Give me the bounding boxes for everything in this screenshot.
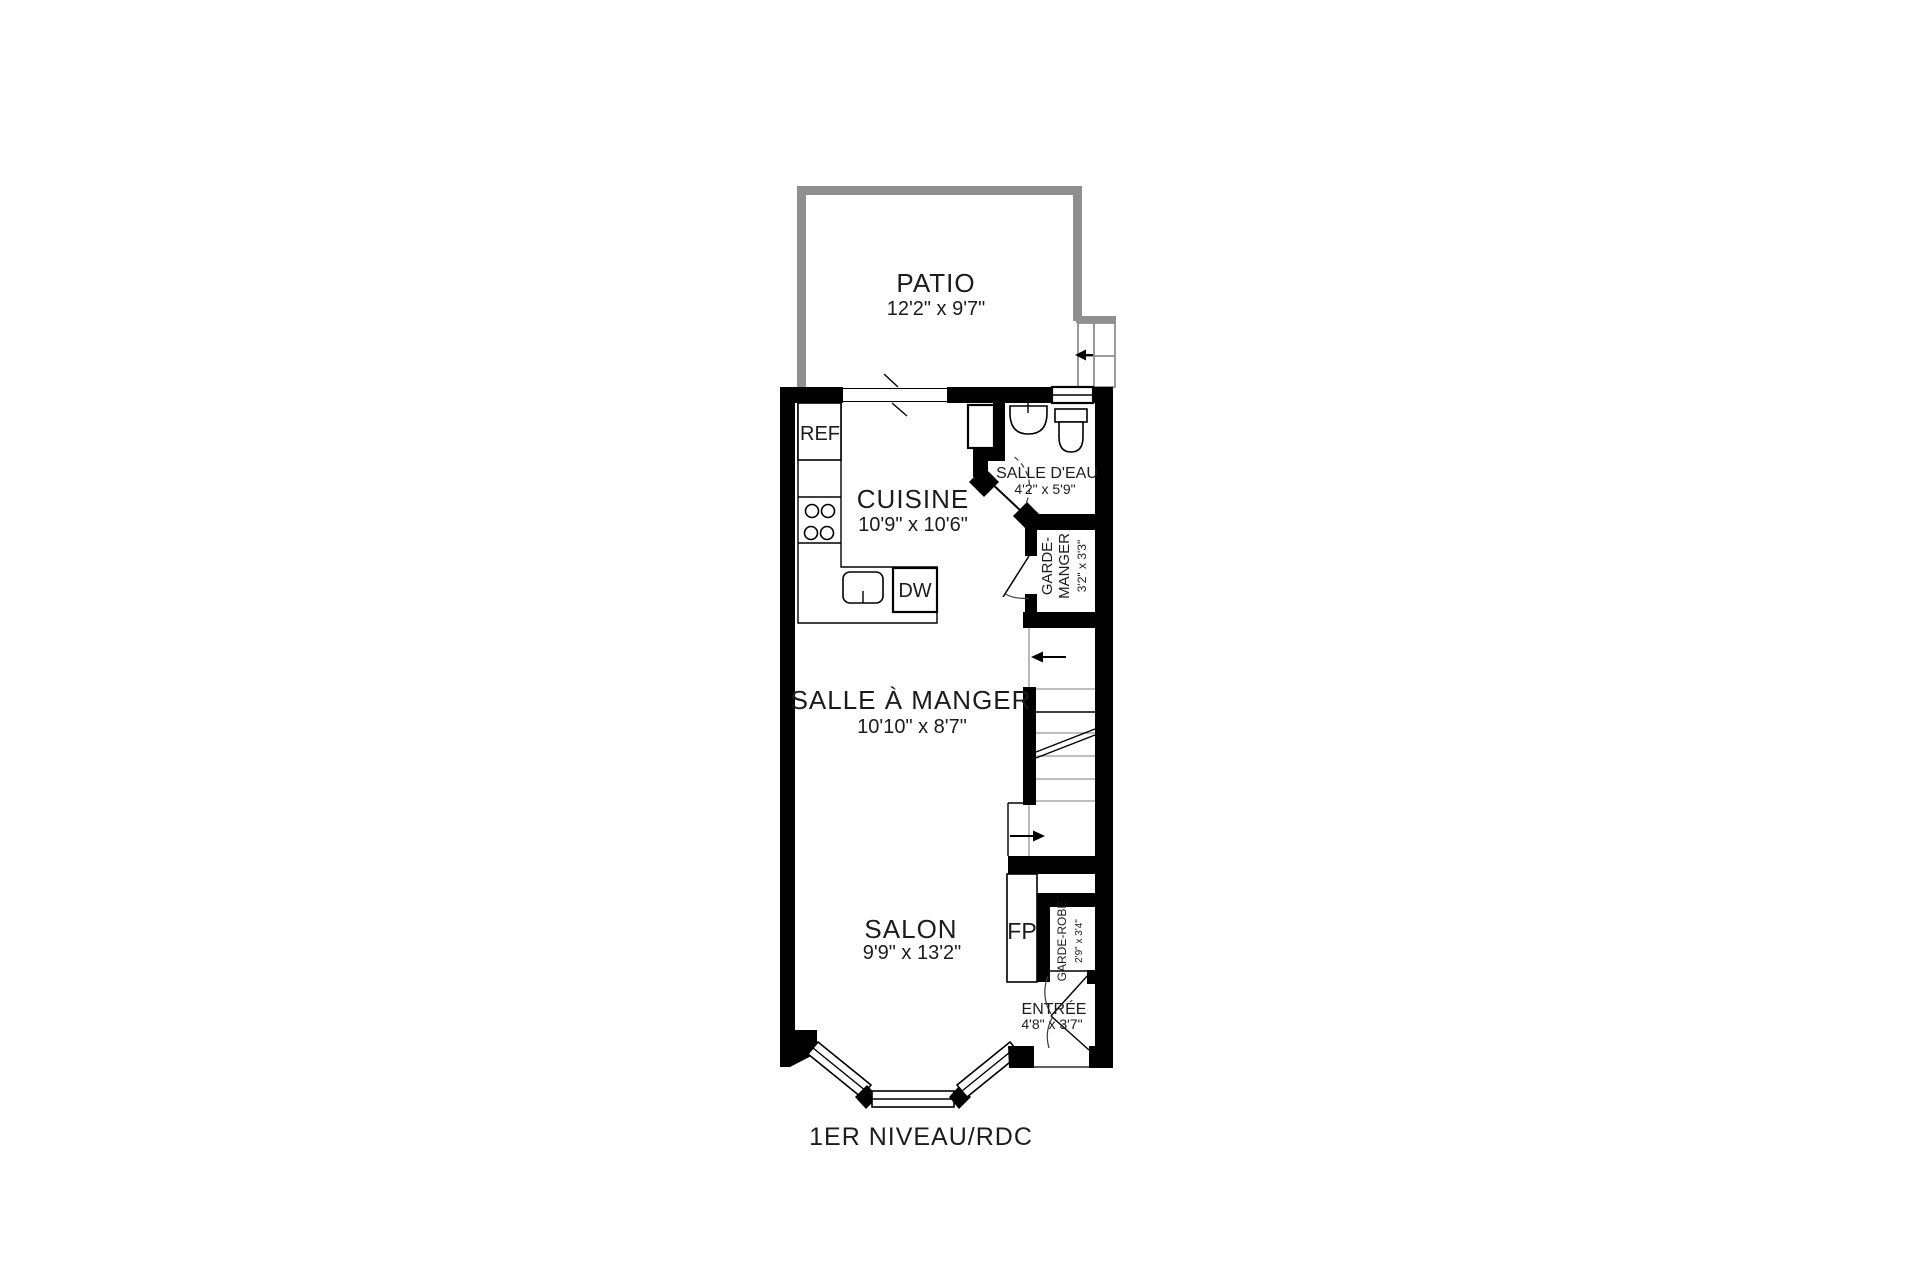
stairs-up-arrow	[1031, 652, 1066, 663]
fireplace-label: FP	[1007, 918, 1036, 944]
dishwasher-label: DW	[898, 580, 931, 602]
kitchen-sink	[843, 572, 883, 603]
burner	[805, 527, 818, 540]
stair-landing	[1008, 803, 1045, 856]
room-label-cuisine: CUISINE	[857, 484, 969, 514]
room-dims-salon: 9'9" x 13'2"	[863, 942, 962, 964]
room-dims-salle-a-manger: 10'10" x 8'7"	[857, 716, 967, 738]
floor-plan-page: PATIO 12'2" x 9'7" CUISINE 10'9" x 10'6"…	[0, 0, 1920, 1280]
burner	[821, 527, 834, 540]
stair-bottom-wall	[1008, 856, 1113, 874]
burner	[822, 505, 835, 518]
bay-corner-left	[780, 1030, 817, 1067]
room-dims-garde-manger: 3'2" x 3'3"	[1075, 540, 1089, 592]
room-dims-salle-deau: 4'2" x 5'9"	[1014, 481, 1075, 497]
room-dims-patio: 12'2" x 9'7"	[887, 298, 986, 320]
room-dims-cuisine: 10'9" x 10'6"	[858, 514, 968, 536]
patio-wall-right	[1073, 186, 1082, 321]
front-door-jamb	[1089, 1046, 1113, 1068]
bathroom-window	[1052, 387, 1093, 403]
room-label-patio: PATIO	[896, 268, 975, 298]
burner	[806, 505, 819, 518]
patio-wall-left	[797, 186, 806, 387]
bathroom-sink	[1010, 402, 1047, 434]
room-label-salon: SALON	[864, 914, 957, 944]
patio-door	[843, 374, 947, 416]
stairs-down-arrow	[1010, 831, 1045, 842]
floor-title: 1ER NIVEAU/RDC	[809, 1123, 1033, 1151]
room-label-garde-manger-line1: GARDE-	[1039, 537, 1056, 595]
exterior-stairs	[1075, 323, 1115, 387]
room-label-salle-deau: SALLE D'EAU	[996, 465, 1098, 482]
bathroom-partition-wall	[968, 403, 1005, 497]
wall-top-mid-segment	[947, 387, 1052, 403]
room-label-garde-manger-line2: MANGER	[1056, 533, 1073, 599]
kitchen-tall-cabinet	[968, 405, 994, 448]
bay-corner-right	[1008, 1046, 1034, 1068]
room-label-garde-robe: GARDE-ROBE	[1055, 901, 1069, 982]
toilet	[1055, 409, 1087, 452]
room-label-salle-a-manger: SALLE À MANGER	[791, 685, 1032, 715]
patio-door-tick-inner	[892, 403, 907, 416]
room-dims-entree: 4'8" x 3'7"	[1021, 1016, 1082, 1032]
patio-door-tick-outer	[884, 374, 898, 387]
refrigerator-label: REF	[800, 423, 840, 445]
floor-plan-drawing: PATIO 12'2" x 9'7" CUISINE 10'9" x 10'6"…	[0, 0, 1920, 1280]
pantry-door	[1003, 556, 1029, 598]
bay-window	[780, 1030, 1034, 1109]
patio-wall-stub	[1076, 316, 1116, 323]
room-dims-garde-robe: 2'9" x 3'4"	[1074, 919, 1085, 963]
wall-right	[1095, 387, 1113, 1068]
patio-wall-top	[797, 186, 1082, 195]
